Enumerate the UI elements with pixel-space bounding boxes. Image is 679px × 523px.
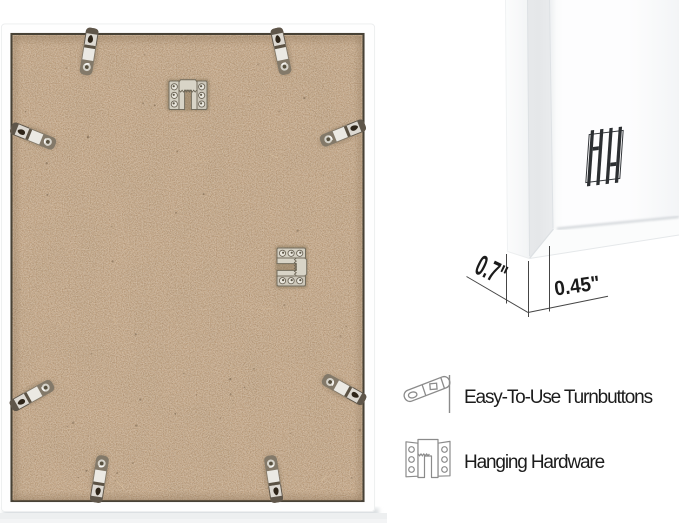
svg-text:Hanging Hardware: Hanging Hardware [464,452,605,473]
svg-text:0.7": 0.7" [470,250,512,292]
svg-text:0.45": 0.45" [553,272,601,301]
svg-text:Easy-To-Use Turnbuttons: Easy-To-Use Turnbuttons [464,387,653,408]
